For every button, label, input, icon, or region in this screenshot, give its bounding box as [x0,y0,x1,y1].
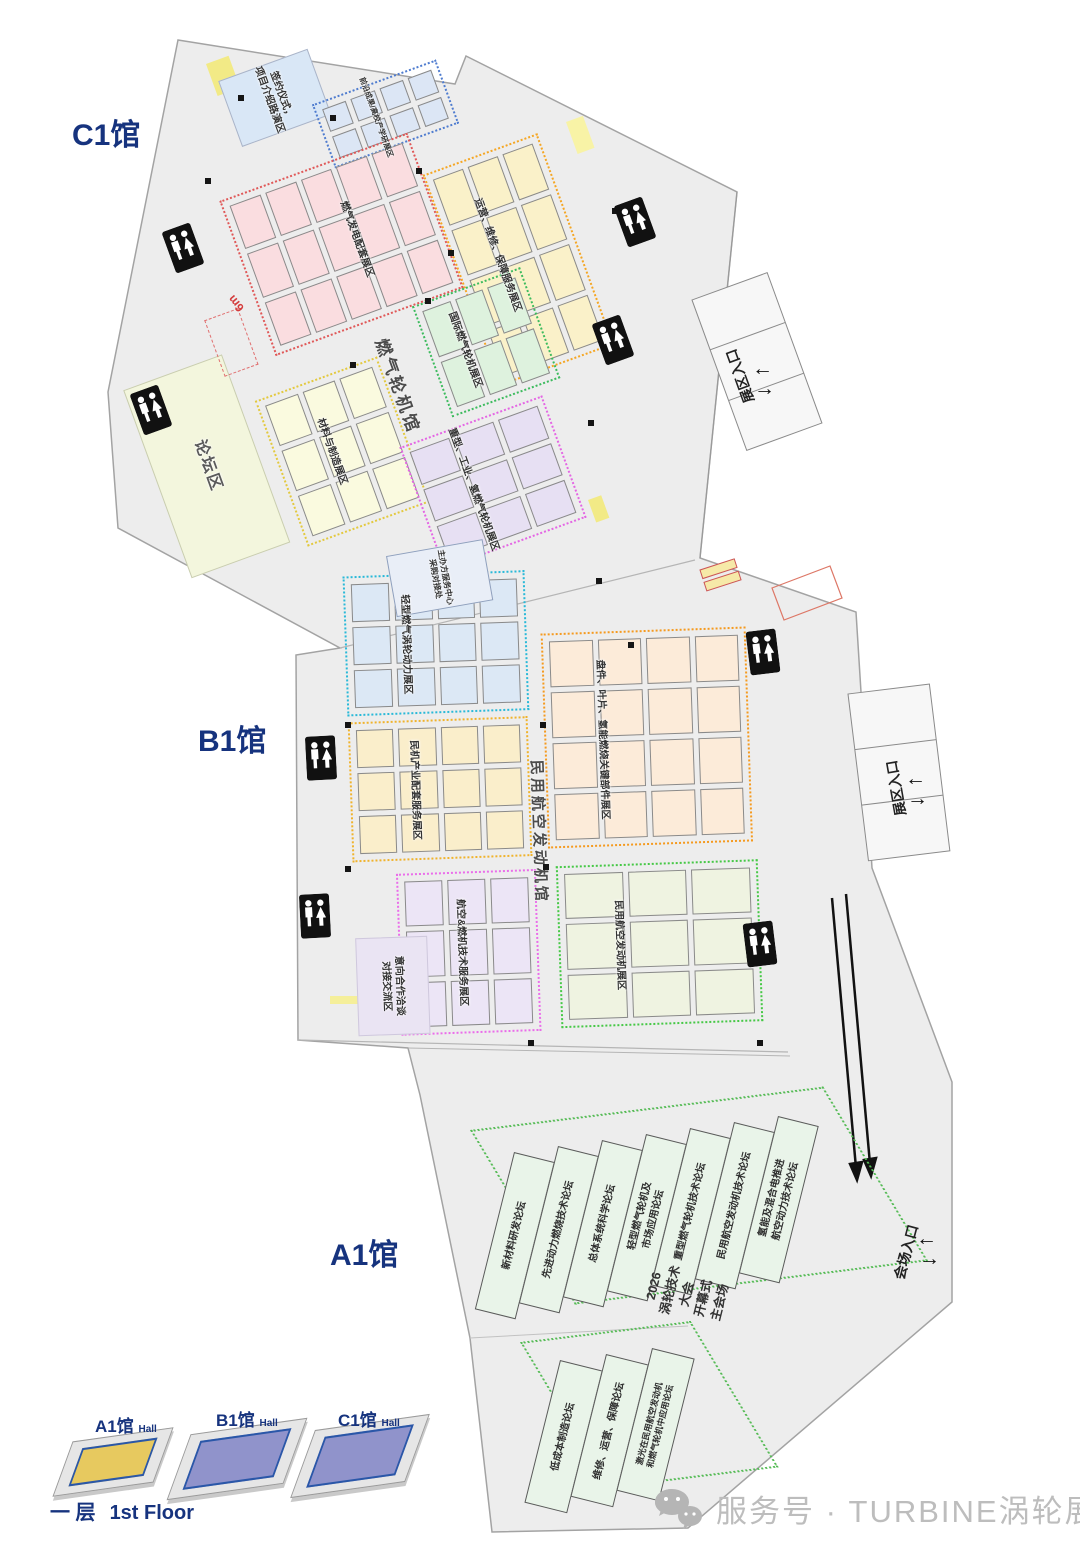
booth-cell [629,920,689,967]
forum-hall-label: 低成本制造论坛 [549,1401,579,1472]
legend-label-c1: C1馆 Hall [338,1406,400,1431]
legend-b1-face [183,1428,292,1490]
booth-cell [554,793,599,840]
booth-cell [417,96,449,127]
arrow-left-icon: ← [752,358,773,379]
booth-cell [486,810,525,849]
legend-label-b1: B1馆 Hall [216,1406,278,1431]
booth-cell [646,636,691,683]
booth-cell [340,367,387,419]
restroom-icon [745,628,780,675]
legend-label-a1: A1馆 Hall [95,1412,157,1437]
hall-title-b1: B1馆 [198,716,266,760]
booth-cell [404,880,444,927]
booth-cell [351,583,390,622]
booth-cell [651,789,696,836]
booth-cell [407,70,439,101]
booth-cell [631,970,691,1017]
zone-civil-aero-engine: 民用航空发动机展区 [556,859,764,1028]
booth-cell [443,812,482,851]
arrow-right-icon: → [907,788,928,809]
booth-cell [551,691,596,738]
booth-cell [695,968,755,1015]
restroom-icon [305,735,337,781]
zone-negotiation-exchange: 意向合作洽谈 对接交流区 [355,936,430,1036]
booth-cell [628,870,688,917]
zone-label: 意向合作洽谈 对接交流区 [379,956,407,1017]
booth-cell [694,635,739,682]
watermark-text: 服务号 · TURBINE涡轮展 [716,1486,1080,1531]
booth-cell [482,664,521,703]
arrow-left-icon: ← [916,1228,937,1249]
booth-cell [648,687,693,734]
wechat-icon [652,1487,704,1531]
zone-key-parts: 盘件、叶片、氢能燃烧关键部件展区 [541,626,753,848]
booth-cell [484,767,523,806]
zone-label: 签约仪式， 项目介绍路演区 [251,60,299,135]
booth-cell [525,480,576,527]
service-center-label: 主办方服务中心 采购对接处 [425,549,455,608]
booth-cell [438,623,477,662]
legend-floor-label: 一 层1st Floor [50,1496,194,1525]
booth-cell [442,769,481,808]
booth-cell [480,621,519,660]
booth-cell [352,626,391,665]
booth-cell [379,80,411,111]
zone-label: 论坛区 [188,437,226,495]
floorplan-page: 签约仪式， 项目介绍路演区 前沿成果/高校产学研展区 燃气发电配套展区 运营、维… [0,0,1080,1559]
booth-cell [698,737,743,784]
booth-cell [696,686,741,733]
booth-cell [492,928,532,975]
arrow-left-icon: ← [905,768,926,789]
forum-hall-label: 总体系统科学论坛 [587,1183,619,1264]
zone-frontier-academia: 前沿成果/高校产学研展区 [312,59,459,168]
booth-grid [422,277,550,407]
booth-cell [440,726,479,765]
zone-civil-industry-supporting: 民机产业配套服务展区 [348,716,533,862]
booth-cell [359,815,398,854]
booth-grid [356,724,524,854]
booth-cell [549,640,594,687]
booth-cell [700,788,745,835]
b1-hall-content: 主办方服务中心 采购对接处 轻型燃气涡轮动力展区 民机产业配套服务展区 盘件、叶… [300,542,877,1051]
booth-cell [356,412,403,464]
zone-heavy-industrial-hydrogen: 重型、工业、氢燃气轮机展区 [399,395,586,569]
booth-cell [483,724,522,763]
watermark: 服务号 · TURBINE涡轮展 [652,1486,1080,1531]
booth-cell [691,867,751,914]
booth-cell [552,742,597,789]
arrow-right-icon: → [919,1248,940,1269]
booth-cell [357,772,396,811]
booth-cell [649,738,694,785]
booth-cell [490,877,530,924]
legend-a1-face [68,1438,157,1487]
forum-hall-label: 新材料研发论坛 [500,1200,530,1271]
booth-cell [356,729,395,768]
booth-cell [439,666,478,705]
booth-cell [322,101,354,132]
arrow-right-icon: → [754,378,775,399]
hall-title-a1: A1馆 [330,1230,398,1274]
booth-grid [564,867,755,1019]
restroom-icon [742,920,777,967]
restroom-icon [299,893,331,939]
booth-cell [494,978,534,1025]
booth-cell [354,669,393,708]
hall-title-c1: C1馆 [72,110,140,154]
booth-grid [549,635,745,840]
forum-hall-label: 激光在民用航空发动机 和燃气轮机中应用论坛 [634,1381,677,1469]
legend-c1-face [306,1424,414,1488]
